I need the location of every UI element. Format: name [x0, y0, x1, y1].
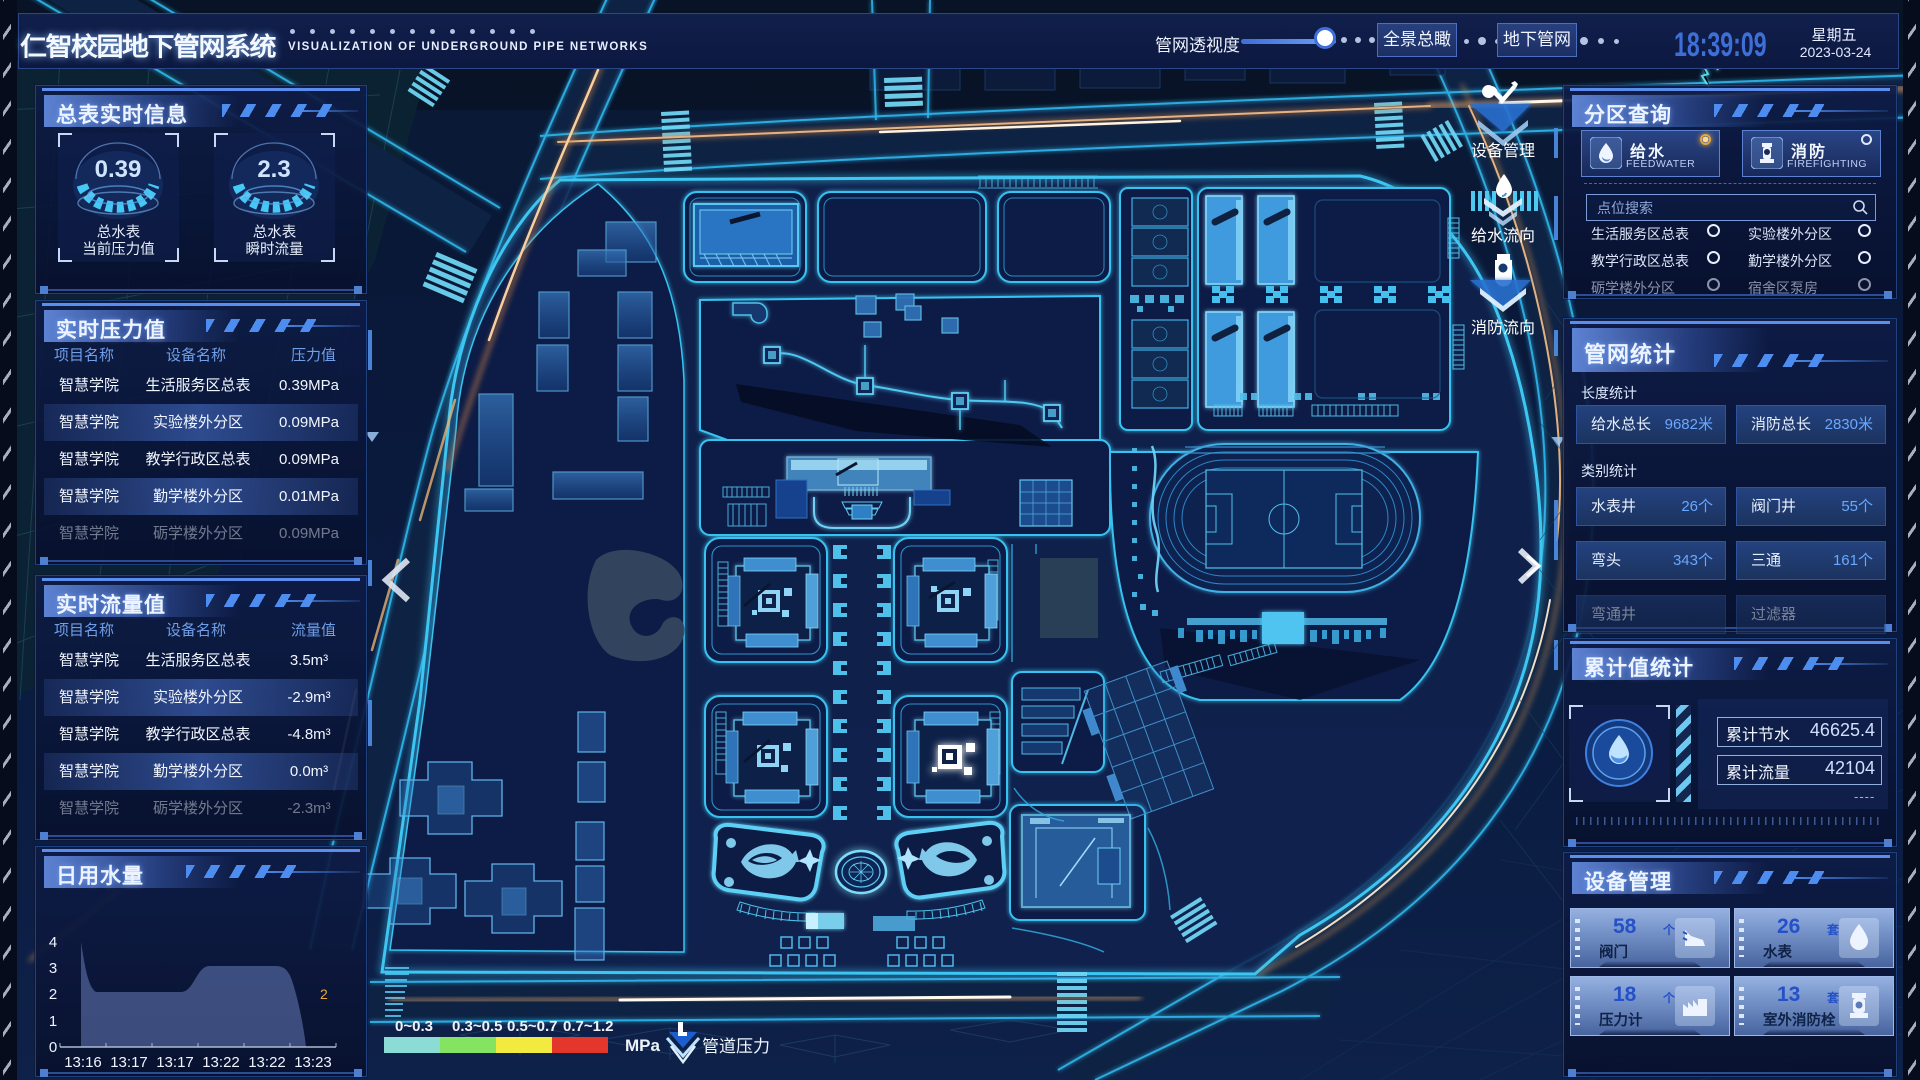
svg-text:设备管理: 设备管理 — [1471, 142, 1535, 160]
svg-text:13:22: 13:22 — [202, 1054, 240, 1071]
svg-text:13:23: 13:23 — [294, 1054, 332, 1071]
svg-text:2.3: 2.3 — [257, 156, 290, 183]
svg-text:消防流向: 消防流向 — [1471, 319, 1535, 337]
svg-text:2: 2 — [320, 986, 328, 1002]
svg-text:0: 0 — [49, 1039, 57, 1056]
svg-text:13:17: 13:17 — [156, 1054, 194, 1071]
svg-text:13:22: 13:22 — [248, 1054, 286, 1071]
svg-text:13:16: 13:16 — [64, 1054, 102, 1071]
svg-text:13:17: 13:17 — [110, 1054, 148, 1071]
svg-text:2: 2 — [49, 986, 57, 1003]
svg-text:给水流向: 给水流向 — [1471, 227, 1535, 245]
svg-text:4: 4 — [49, 934, 57, 951]
svg-text:3: 3 — [49, 960, 57, 977]
svg-text:1: 1 — [49, 1013, 57, 1030]
svg-text:0.39: 0.39 — [95, 156, 142, 183]
